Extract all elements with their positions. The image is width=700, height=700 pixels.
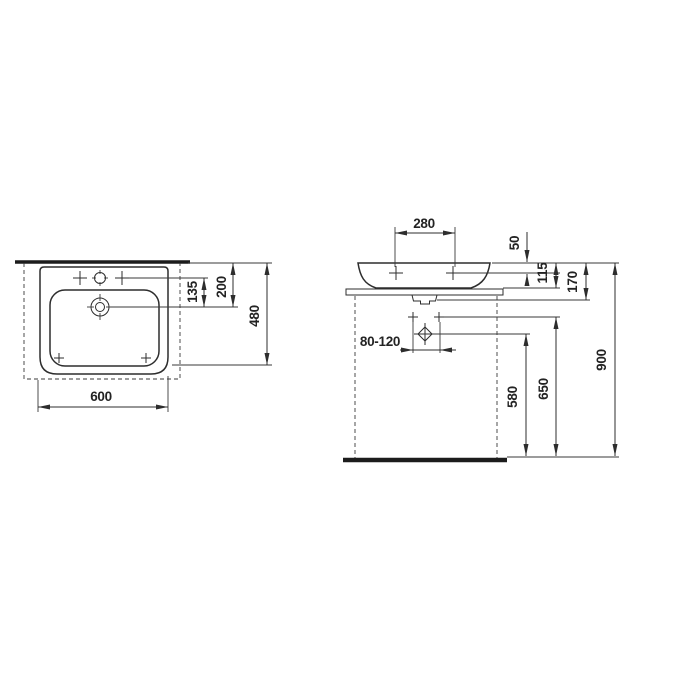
dimension-115: 115 [535, 262, 556, 288]
dimension-900: 900 [594, 263, 615, 456]
dimension-label: 80-120 [360, 334, 400, 349]
tap-hole-mark-left [389, 266, 403, 280]
basin-inner-bowl [50, 290, 159, 366]
dimension-label: 580 [505, 386, 520, 408]
dimension-label: 900 [594, 349, 609, 371]
drain-boss [412, 295, 437, 304]
dimension-label: 650 [536, 378, 551, 400]
tap-hole [92, 270, 108, 286]
tap-hole-alt-left-mark [73, 271, 87, 285]
dimension-label: 135 [185, 280, 200, 302]
dimension-200: 200 [188, 263, 272, 307]
drain-outlet [87, 294, 113, 320]
dimension-580: 580 [505, 334, 526, 456]
dimension-170: 170 [565, 263, 586, 300]
overflow-mark-left [54, 353, 64, 363]
tap-hole-mark-right [446, 266, 460, 280]
dimension-50: 50 [507, 232, 527, 286]
washbasin-technical-drawing: 135 200 480 600 [0, 0, 700, 700]
dimension-label: 170 [565, 271, 580, 293]
overflow-mark-right [141, 353, 151, 363]
dimension-label: 280 [413, 216, 435, 231]
elevation-view: 280 50 115 170 [343, 216, 619, 460]
tap-hole-alt-right-mark [115, 271, 129, 285]
dimension-280: 280 [395, 216, 455, 267]
dimension-label: 480 [247, 305, 262, 327]
countertop-section [346, 289, 503, 295]
fixing-mark-left [408, 312, 418, 322]
plan-view: 135 200 480 600 [15, 262, 272, 412]
technical-drawing-canvas: 135 200 480 600 [0, 0, 700, 700]
fixing-mark-right [434, 312, 444, 322]
dimension-80-120: 80-120 [360, 322, 456, 353]
waste-pipe-symbol [414, 323, 436, 345]
dimension-label: 115 [535, 262, 550, 284]
countertop-hidden-outline [24, 263, 180, 379]
dimension-label: 600 [90, 389, 112, 404]
dimension-label: 200 [214, 276, 229, 298]
dimension-650: 650 [536, 317, 556, 456]
dimension-600: 600 [38, 376, 168, 412]
dimension-label: 50 [507, 236, 522, 250]
basin-front-profile [358, 263, 490, 288]
